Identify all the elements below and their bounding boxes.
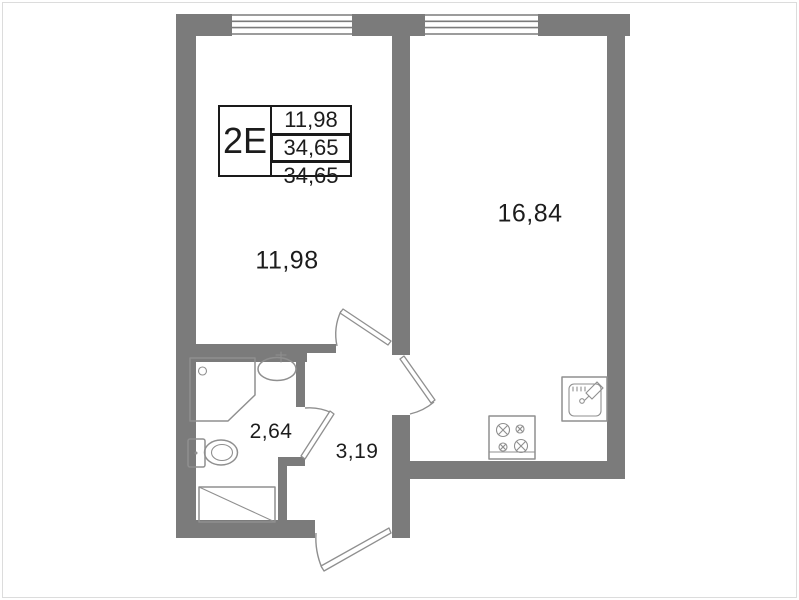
wall-right — [607, 14, 625, 479]
title-block-row-full-area: 34,65 — [272, 163, 350, 189]
title-block-row-total-area: 34,65 — [272, 135, 350, 163]
wall-left — [176, 14, 196, 538]
hall-area-label: 3,19 — [336, 440, 379, 464]
door-bathroom — [301, 408, 334, 459]
window-right — [425, 14, 538, 36]
door-room-right — [400, 356, 435, 414]
kitchen-sink-symbol — [562, 377, 607, 421]
room-right-area-label: 16,84 — [497, 200, 562, 229]
walls — [176, 14, 630, 538]
wall-hall-top — [307, 344, 336, 353]
door-entrance — [316, 528, 391, 571]
window-right-opening — [425, 14, 538, 36]
wall-middle-upper — [392, 36, 410, 355]
window-left-opening — [232, 14, 352, 36]
shower-drain-icon — [199, 367, 207, 375]
unit-code-cell: 2Е — [220, 107, 272, 175]
wall-bottom-right-room — [392, 461, 625, 479]
window-left — [232, 14, 352, 36]
bathroom-area-label: 2,64 — [250, 420, 293, 444]
room-left-area-label: 11,98 — [255, 247, 318, 276]
floor-plan-svg — [0, 0, 799, 600]
floor-plan-canvas: 2Е 11,98 34,65 34,65 11,98 16,84 2,64 3,… — [0, 0, 799, 600]
wall-top-pier — [352, 14, 425, 36]
title-block-values: 11,98 34,65 34,65 — [272, 107, 350, 175]
wall-bath-hall-upper — [296, 362, 305, 407]
sink-drain-icon — [580, 399, 585, 404]
appliance-niche-symbol — [199, 487, 275, 522]
stove-symbol — [489, 416, 535, 459]
wall-bath-step — [278, 457, 305, 466]
door-room-left — [336, 309, 391, 346]
wall-bath-hall-lower — [278, 466, 287, 520]
shower-cabin-symbol — [190, 358, 255, 421]
title-block-row-living-area: 11,98 — [272, 107, 350, 135]
wall-middle-lower — [392, 415, 410, 538]
title-block: 2Е 11,98 34,65 34,65 — [218, 105, 352, 177]
